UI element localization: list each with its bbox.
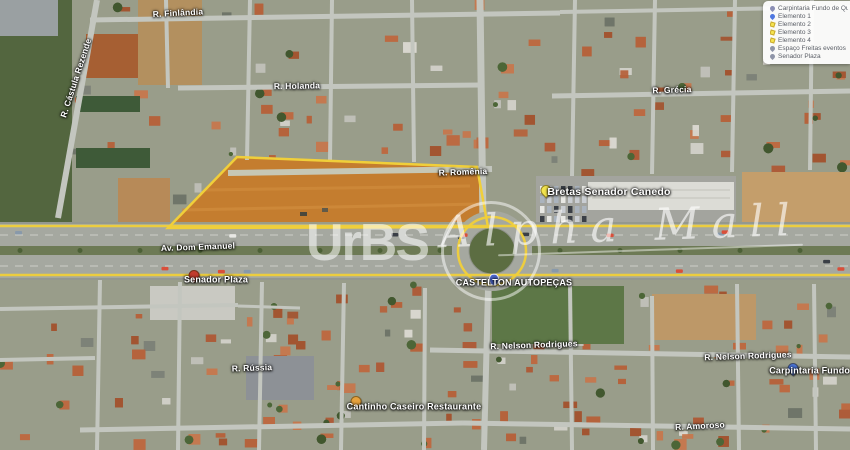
street-label: R. Cástula Rezende	[59, 37, 93, 118]
poi-label[interactable]: Senador Plaza	[184, 276, 248, 285]
legend-item[interactable]: Elemento 3	[770, 29, 848, 36]
street-label: R. Nelson Rodrigues	[490, 339, 578, 351]
legend-item-label: Elemento 1	[778, 13, 811, 20]
legend-blue-pin-icon	[770, 13, 776, 20]
street-label: R. Finlândia	[153, 7, 204, 18]
poi-label[interactable]: Bretas Senador Canedo	[547, 187, 670, 198]
legend-item-label: Carpintaria Fundo de Quintal	[778, 5, 848, 12]
street-label: R. Holanda	[274, 81, 321, 90]
legend-item[interactable]: Carpintaria Fundo de Quintal	[770, 5, 848, 12]
satellite-map[interactable]: R. FinlândiaR. Cástula RezendeR. Holanda…	[0, 0, 850, 450]
legend-item[interactable]: Espaço Freitas eventos	[770, 45, 848, 52]
legend-item-label: Elemento 3	[778, 29, 811, 36]
legend-panel: Carpintaria Fundo de QuintalElemento 1El…	[763, 1, 850, 64]
legend-item[interactable]: Senador Plaza	[770, 53, 848, 60]
street-label: R. Grécia	[652, 85, 691, 95]
legend-item[interactable]: Elemento 1	[770, 13, 848, 20]
legend-yellow-shape-icon	[770, 37, 776, 43]
poi-label[interactable]: Cantinho Caseiro Restaurante	[347, 403, 482, 412]
legend-yellow-shape-icon	[770, 29, 776, 35]
street-label: R. Amoroso	[675, 420, 725, 431]
poi-label[interactable]: CASTELTON AUTOPEÇAS	[456, 279, 572, 288]
legend-item-label: Elemento 4	[778, 37, 811, 44]
street-label: R. Rússia	[232, 363, 273, 373]
legend-item-label: Elemento 2	[778, 21, 811, 28]
legend-grey-pin-icon	[770, 53, 776, 60]
map-labels-layer: R. FinlândiaR. Cástula RezendeR. Holanda…	[0, 0, 850, 450]
legend-yellow-shape-icon	[770, 21, 776, 27]
street-label: R. Romênia	[438, 167, 487, 177]
street-label: R. Nelson Rodrigues	[704, 350, 792, 362]
legend-item[interactable]: Elemento 4	[770, 37, 848, 44]
street-label: Av. Dom Emanuel	[161, 241, 236, 252]
legend-grey-pin-icon	[770, 45, 776, 52]
legend-item[interactable]: Elemento 2	[770, 21, 848, 28]
legend-item-label: Espaço Freitas eventos	[778, 45, 846, 52]
legend-purple-pin-icon	[770, 5, 776, 12]
poi-label[interactable]: Carpintaria Fundo de Quintal	[769, 367, 850, 376]
legend-item-label: Senador Plaza	[778, 53, 821, 60]
